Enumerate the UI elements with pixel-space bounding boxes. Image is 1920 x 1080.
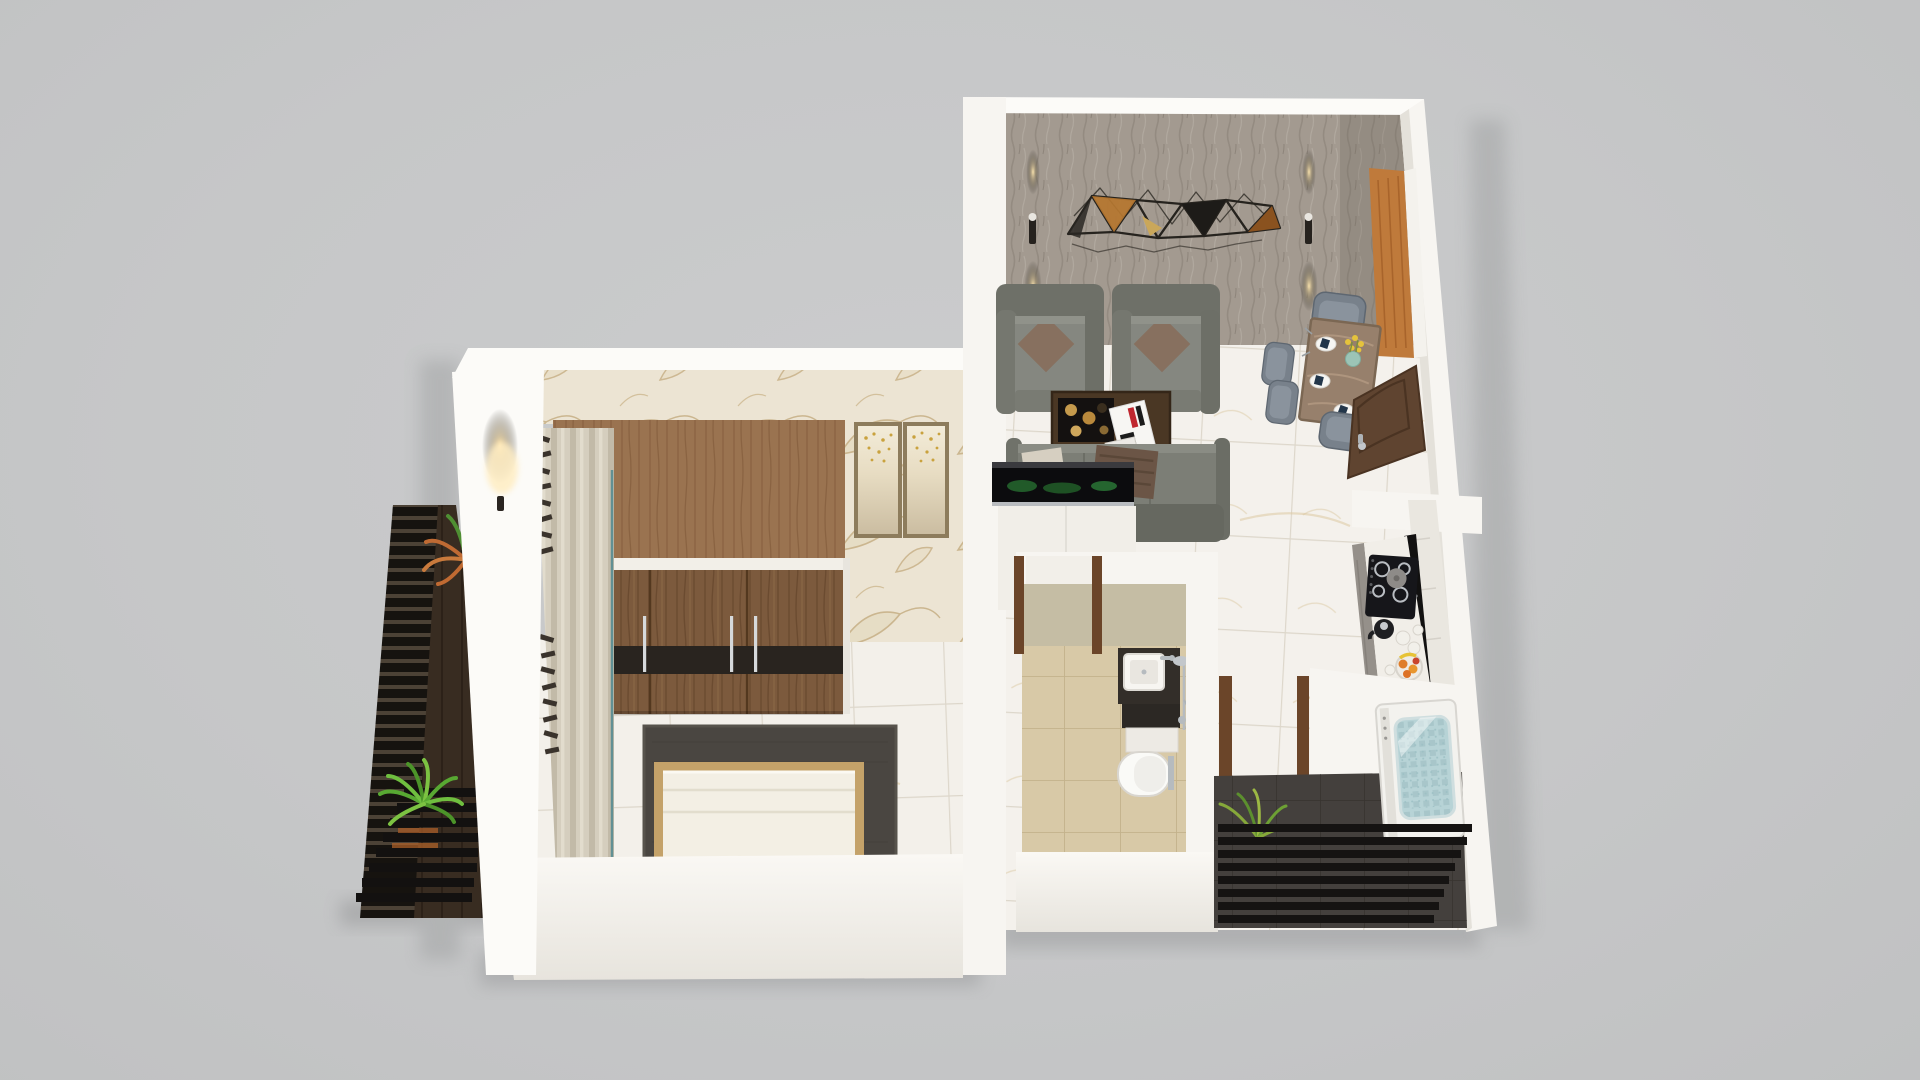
washing-machine bbox=[1375, 699, 1464, 842]
vanity-drawer bbox=[1126, 728, 1178, 752]
floor-plan-render bbox=[0, 0, 1920, 1080]
toilet bbox=[1118, 752, 1174, 796]
bedroom-bottom-wall bbox=[498, 854, 963, 980]
living-top-wall bbox=[963, 97, 1424, 115]
fruit-bowl bbox=[1396, 654, 1422, 680]
bathroom-bottom-wall bbox=[1016, 852, 1218, 932]
dining-chair-left-2 bbox=[1265, 379, 1299, 425]
bathroom-upper-wall-tiles bbox=[1022, 584, 1186, 648]
bed bbox=[654, 762, 864, 860]
bathroom-door-post-left bbox=[1014, 556, 1024, 654]
utility-door-post-right bbox=[1297, 676, 1309, 778]
framed-artwork-pair bbox=[856, 424, 947, 536]
framed-artwork-right bbox=[905, 424, 947, 536]
framed-artwork-left bbox=[856, 424, 900, 536]
bathroom bbox=[1014, 552, 1218, 932]
vanity bbox=[1118, 648, 1180, 752]
floor-plan-stage bbox=[0, 0, 1920, 1080]
utility-door-post-left bbox=[1219, 676, 1232, 780]
bathroom-door-post-right bbox=[1092, 556, 1102, 654]
gas-hob bbox=[1365, 554, 1419, 619]
bedroom bbox=[452, 348, 963, 980]
bathroom-right-wall bbox=[1186, 552, 1218, 888]
